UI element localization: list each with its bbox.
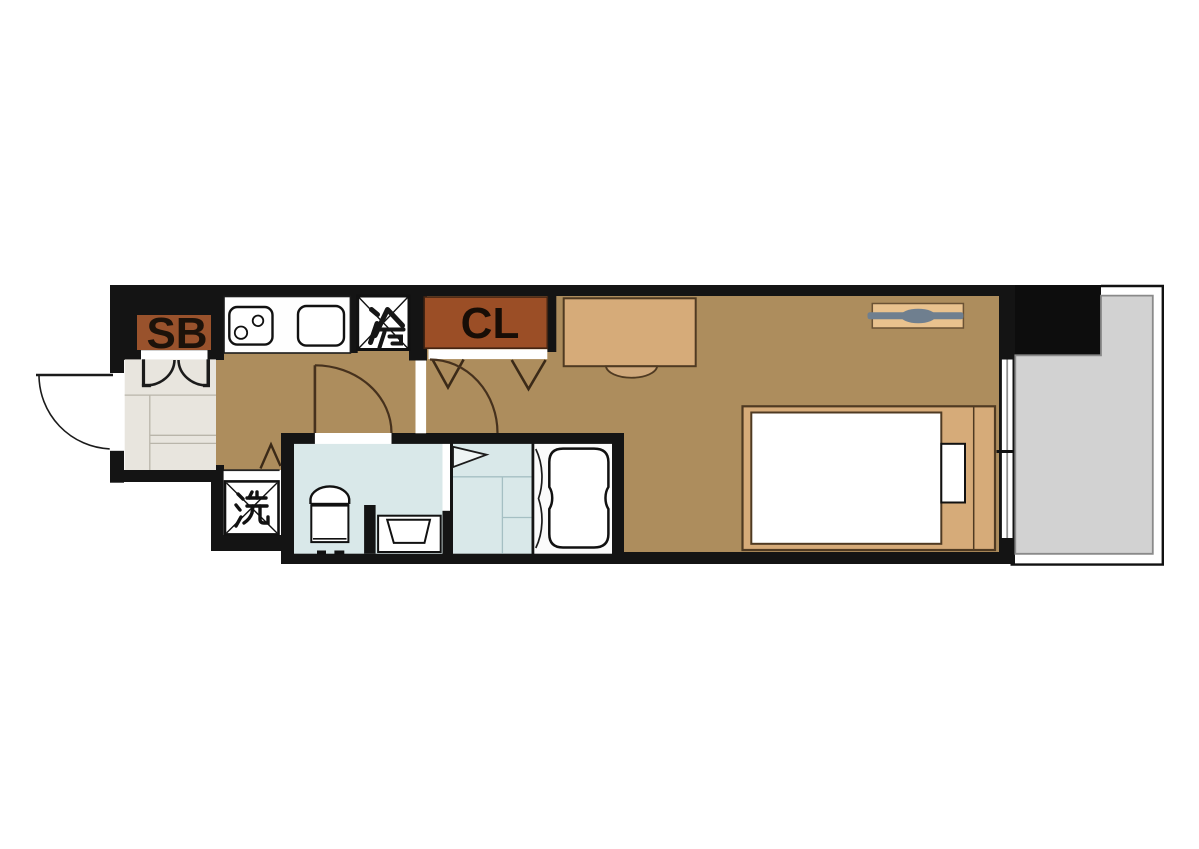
svg-text:CL: CL bbox=[461, 299, 520, 348]
